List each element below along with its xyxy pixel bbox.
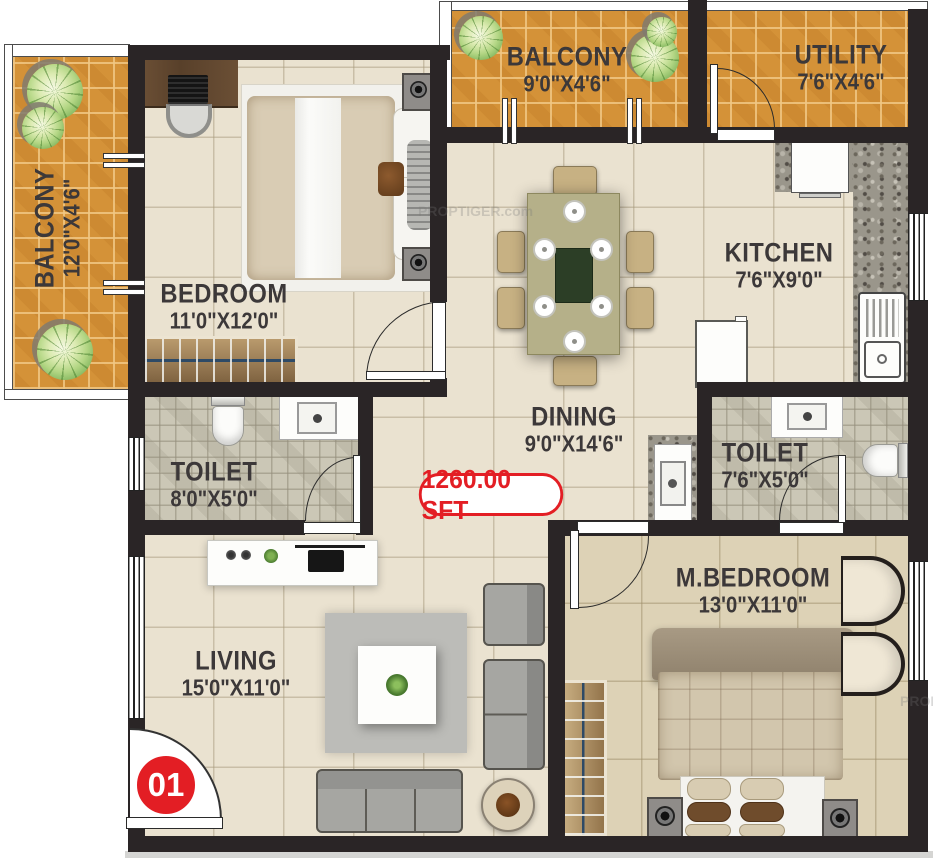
wall-living-divider: [548, 520, 565, 852]
room-dims: 8'0"X5'0": [170, 486, 257, 511]
table-runner: [555, 248, 593, 303]
room-name: LIVING: [182, 646, 291, 675]
side-table-bowl: [496, 793, 520, 817]
room-label-m-bedroom: M.BEDROOM 13'0"X11'0": [676, 563, 830, 616]
room-label-utility: UTILITY 7'6"X4'6": [795, 40, 888, 93]
wardrobe: [560, 680, 607, 838]
speaker-cone-icon: [830, 808, 850, 828]
stove-front: [799, 193, 841, 198]
unit-number-badge: 01: [135, 754, 197, 816]
toilet-bowl: [212, 406, 244, 446]
room-label-bedroom: BEDROOM 11'0"X12'0": [160, 279, 287, 332]
door-sill: [303, 522, 361, 534]
door-sill: [717, 129, 775, 141]
plate-icon: [563, 200, 586, 223]
room-name: BALCONY: [30, 168, 59, 289]
toilet-tank: [211, 396, 245, 406]
door-sill: [779, 522, 844, 534]
dining-chair: [553, 166, 597, 196]
room-name: BALCONY: [507, 42, 628, 71]
room-dims: 11'0"X12'0": [160, 308, 287, 333]
plate-icon: [590, 295, 613, 318]
wall-toilet-right-top: [697, 382, 912, 397]
tree-icon: [647, 17, 677, 47]
speaker-cone-icon: [410, 254, 427, 271]
bed-duvet: [658, 672, 843, 780]
door-leaf: [710, 64, 718, 134]
door-leaf: [570, 530, 579, 609]
bed-runner: [295, 98, 341, 278]
wall-top-bedroom: [128, 45, 450, 60]
stove: [791, 141, 849, 193]
room-dims: 7'6"X9'0": [725, 267, 834, 292]
room-dims: 9'0"X14'6": [525, 431, 624, 456]
sliding-door-track: [103, 153, 145, 159]
laptop: [168, 75, 208, 104]
refrigerator: [695, 320, 748, 388]
unit-number: 01: [148, 766, 185, 804]
room-name: M.BEDROOM: [676, 563, 830, 592]
tree-icon: [459, 16, 503, 60]
cup-icon: [241, 550, 251, 560]
window: [908, 561, 928, 681]
room-name: BEDROOM: [160, 279, 287, 308]
pillow: [687, 778, 731, 800]
drain-icon: [877, 354, 887, 364]
floor-plan: 01 BALCONY 12'0"X4'6" BEDROOM 11'0"X12'0…: [0, 0, 933, 858]
area-badge-text: 1260.00 SFT: [422, 464, 561, 526]
door-leaf: [838, 455, 846, 523]
sliding-door-track: [627, 98, 633, 144]
pillow: [687, 802, 731, 822]
room-label-balcony-top: BALCONY 9'0"X4'6": [507, 42, 628, 95]
tv: [308, 550, 344, 572]
tree-icon: [22, 107, 64, 149]
plate-icon: [533, 295, 556, 318]
tv-soundbar: [295, 545, 365, 548]
tree-icon: [37, 324, 93, 380]
sink-drainboard: [866, 299, 899, 337]
room-dims: 13'0"X11'0": [676, 592, 830, 617]
room-name: TOILET: [170, 457, 257, 486]
wall-bedroom-right-upper: [430, 45, 447, 302]
plate-icon: [533, 238, 556, 261]
door-leaf: [366, 371, 446, 380]
area-badge: 1260.00 SFT: [419, 473, 563, 516]
toilet-bowl: [862, 444, 898, 477]
room-dims: 7'6"X4'6": [795, 69, 888, 94]
balcony-left-frame-top: [4, 44, 130, 57]
wall-toilet-right-left: [697, 382, 712, 536]
wall-bottom: [128, 836, 928, 852]
drain-icon: [313, 414, 322, 423]
sliding-door-track: [103, 280, 145, 286]
window: [128, 556, 145, 719]
balcony-left-frame-bottom: [4, 389, 130, 400]
balcony-top-frame: [439, 1, 691, 11]
bottom-shadow: [125, 851, 933, 858]
cup-icon: [226, 550, 236, 560]
plate-icon: [590, 238, 613, 261]
room-dims: 9'0"X4'6": [507, 71, 628, 96]
bed-tray: [378, 162, 404, 196]
room-label-living: LIVING 15'0"X11'0": [182, 646, 291, 699]
dining-chair: [626, 287, 654, 329]
entrance-sill: [126, 817, 223, 829]
wall-bedroom-bottom: [128, 382, 447, 397]
utility-frame-top: [705, 1, 928, 11]
room-dims: 7'6"X5'0": [721, 467, 808, 492]
door-leaf: [353, 455, 361, 523]
room-name: UTILITY: [795, 40, 888, 69]
watermark: PROPTIGER.com: [418, 203, 533, 219]
toilet-tank: [898, 443, 908, 478]
plate-icon: [563, 330, 586, 353]
speaker-cone-icon: [410, 81, 427, 98]
watermark: PROPTIGER.com: [900, 693, 933, 709]
drain-icon: [803, 412, 812, 421]
sliding-door-track: [636, 98, 642, 144]
sofa-three-seater: [316, 769, 463, 833]
sofa-armchair: [483, 583, 545, 646]
room-name: DINING: [525, 402, 624, 431]
dining-chair: [497, 231, 525, 273]
dining-chair: [553, 356, 597, 386]
balcony-left-frame-left: [4, 44, 13, 400]
window: [908, 213, 928, 301]
sliding-door-track: [103, 162, 145, 168]
room-label-dining: DINING 9'0"X14'6": [525, 402, 624, 455]
drain-icon: [668, 479, 677, 488]
accent-chair: [841, 632, 905, 696]
pillow: [740, 802, 784, 822]
room-label-toilet-left: TOILET 8'0"X5'0": [170, 457, 257, 510]
room-label-balcony-left: BALCONY 12'0"X4'6": [30, 168, 83, 289]
sliding-door-track: [103, 289, 145, 295]
sliding-door-track: [511, 98, 517, 144]
window: [128, 437, 145, 491]
dining-chair: [626, 231, 654, 273]
room-dims: 12'0"X4'6": [59, 168, 84, 289]
dining-chair: [497, 287, 525, 329]
sofa-loveseat: [483, 659, 545, 770]
plant-icon: [264, 549, 278, 563]
plant-icon: [386, 674, 408, 696]
pillow: [740, 778, 784, 800]
room-dims: 15'0"X11'0": [182, 675, 291, 700]
room-name: TOILET: [721, 438, 808, 467]
refrigerator-handle: [735, 316, 747, 322]
speaker-cone-icon: [655, 806, 675, 826]
room-label-toilet-right: TOILET 7'6"X5'0": [721, 438, 808, 491]
wardrobe: [142, 336, 298, 386]
wall-toilet-left-bottom: [128, 520, 305, 535]
door-sill: [577, 521, 649, 534]
wall-balcony-utility-stub: [688, 0, 707, 141]
sliding-door-track: [502, 98, 508, 144]
room-name: KITCHEN: [725, 238, 834, 267]
room-label-kitchen: KITCHEN 7'6"X9'0": [725, 238, 834, 291]
